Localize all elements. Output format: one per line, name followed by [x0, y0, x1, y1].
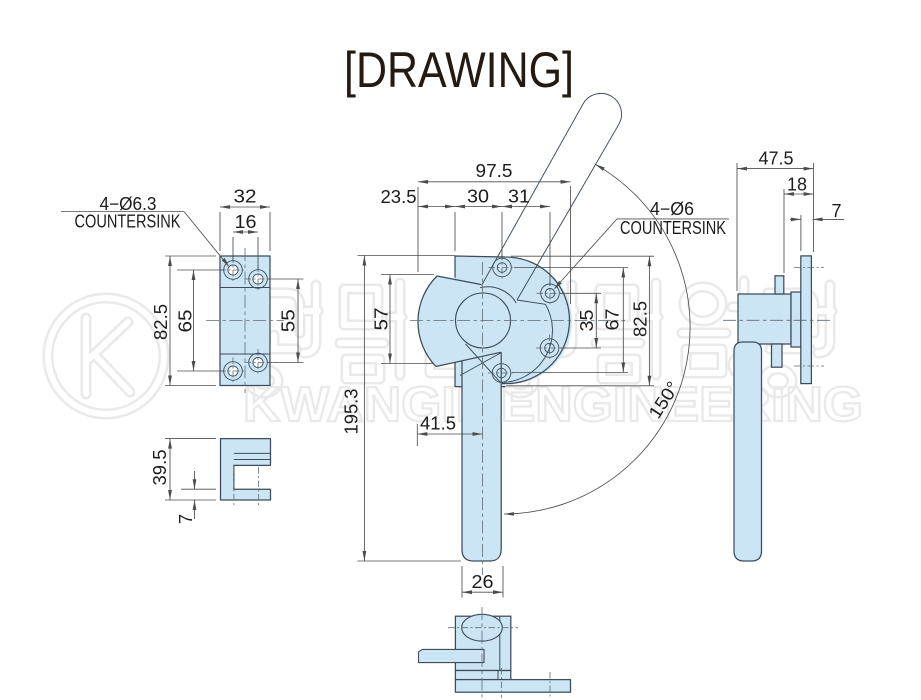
svg-text:4−Ø6: 4−Ø6	[650, 199, 694, 219]
svg-text:195.3: 195.3	[342, 389, 362, 435]
svg-text:31: 31	[508, 187, 530, 207]
svg-text:7: 7	[831, 201, 841, 221]
svg-text:[DRAWING]: [DRAWING]	[344, 42, 574, 98]
svg-text:26: 26	[472, 572, 494, 592]
svg-text:30: 30	[467, 187, 489, 207]
svg-text:16: 16	[235, 212, 257, 232]
svg-text:41.5: 41.5	[420, 414, 456, 434]
svg-text:47.5: 47.5	[759, 149, 794, 169]
svg-text:39.5: 39.5	[150, 450, 170, 486]
svg-text:23.5: 23.5	[381, 187, 417, 207]
svg-text:65: 65	[176, 310, 196, 333]
svg-text:18: 18	[787, 175, 807, 195]
svg-text:97.5: 97.5	[476, 161, 513, 181]
svg-text:COUNTERSINK: COUNTERSINK	[620, 218, 726, 238]
svg-text:32: 32	[234, 187, 257, 207]
svg-text:82.5: 82.5	[630, 301, 650, 337]
svg-text:82.5: 82.5	[151, 304, 171, 340]
svg-text:COUNTERSINK: COUNTERSINK	[75, 212, 181, 232]
svg-text:67: 67	[603, 309, 623, 331]
svg-text:57: 57	[372, 308, 392, 331]
svg-text:35: 35	[577, 310, 597, 332]
svg-text:55: 55	[279, 309, 299, 332]
svg-text:7: 7	[176, 514, 196, 524]
